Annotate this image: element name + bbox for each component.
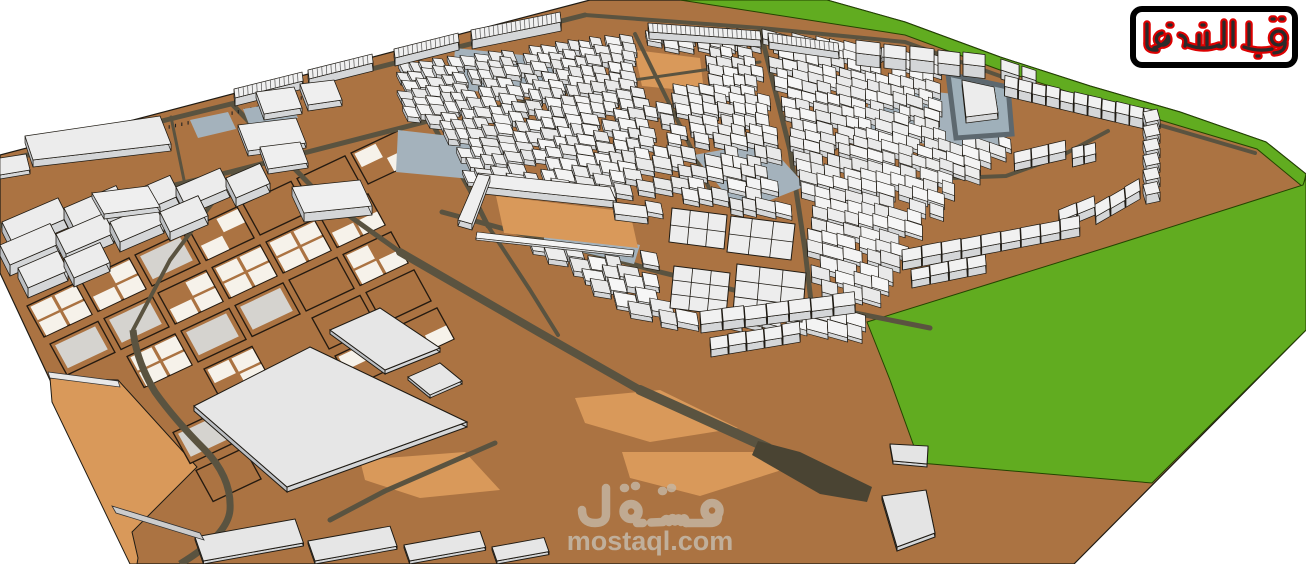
svg-text:mostaql.com: mostaql.com bbox=[567, 526, 734, 556]
